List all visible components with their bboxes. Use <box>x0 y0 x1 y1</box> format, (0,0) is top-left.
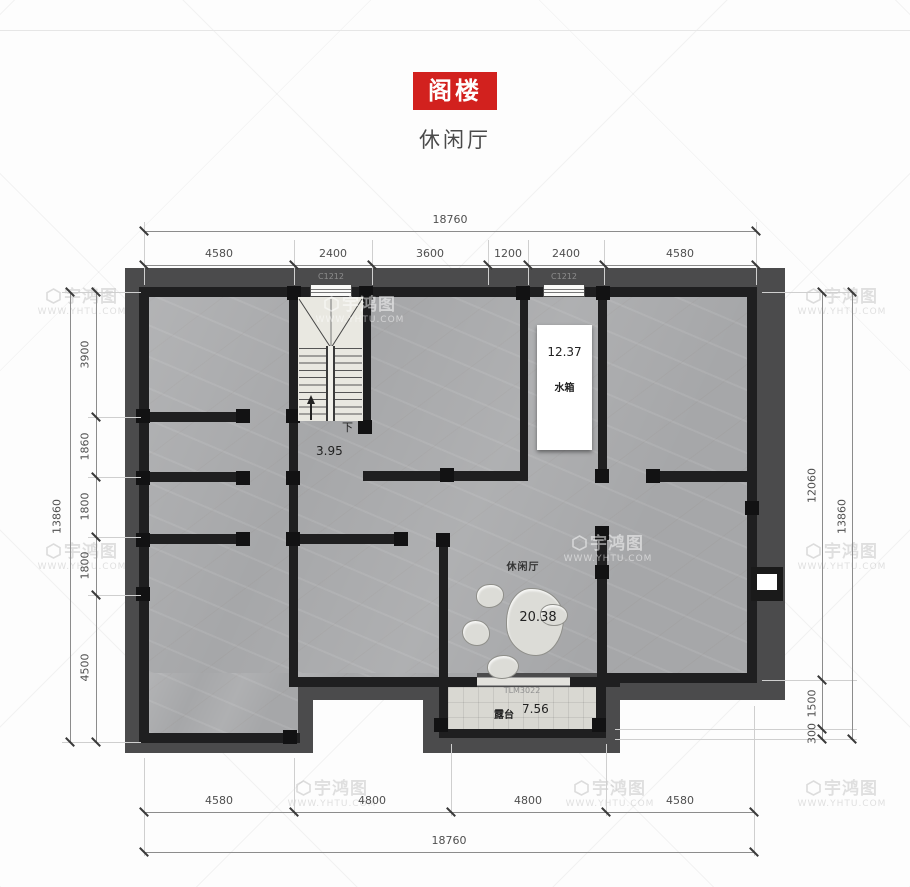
column <box>136 409 150 423</box>
column <box>136 471 150 485</box>
top-divider <box>0 30 910 31</box>
dim-left-seg: 1800 <box>79 482 92 532</box>
watermark-hex-icon: 宇鸿图 <box>782 288 902 307</box>
dim-top-overall: 18760 <box>420 213 480 226</box>
dim-right-seg: 1500 <box>806 684 819 724</box>
floor-main <box>149 297 747 673</box>
column <box>136 587 150 601</box>
window-label-2: C1212 <box>538 272 590 281</box>
column <box>595 469 609 483</box>
column <box>434 718 448 732</box>
ext-line <box>606 744 607 816</box>
column <box>136 533 150 547</box>
wall-tank-right <box>598 297 607 483</box>
dim-top-seg: 2400 <box>308 247 358 260</box>
column <box>358 420 372 434</box>
wall-spine-vertical <box>289 297 298 687</box>
water-tank-value: 12.37 <box>537 345 592 359</box>
column <box>516 286 530 300</box>
watermark-hex-icon: 宇鸿图 <box>300 296 420 315</box>
watermark: 宇鸿图 WWW.YHTU.COM <box>300 296 420 326</box>
watermark: 宇鸿图 WWW.YHTU.COM <box>782 543 902 573</box>
column <box>440 468 454 482</box>
column <box>646 469 660 483</box>
ext-line <box>762 292 857 293</box>
column <box>436 533 450 547</box>
floor-bottom-left-room <box>149 673 298 733</box>
watermark: 宇鸿图 WWW.YHTU.COM <box>550 780 670 810</box>
column <box>286 471 300 485</box>
stair-value-label: 3.95 <box>316 444 352 458</box>
window-c1212-2 <box>543 284 585 297</box>
terrace-value: 7.56 <box>522 702 558 716</box>
wall-right-room <box>648 471 757 482</box>
ext-line <box>294 240 295 285</box>
ext-line <box>372 240 373 285</box>
terrace-door-threshold <box>477 677 570 686</box>
dim-bottom-seg: 4800 <box>503 794 553 807</box>
watermark-hex-icon: 宇鸿图 <box>550 780 670 799</box>
dim-top-seg: 3600 <box>405 247 455 260</box>
column <box>236 409 250 423</box>
terrace-door-code: TLM3022 <box>492 686 552 695</box>
dim-right-overall: 13860 <box>836 487 849 547</box>
stair-stringer <box>326 346 335 421</box>
wall-bottom-middle <box>289 677 477 687</box>
column <box>745 501 759 515</box>
dim-top-seg: 4580 <box>655 247 705 260</box>
dim-bottom-seg: 4580 <box>194 794 244 807</box>
column <box>236 532 250 546</box>
wall-mid-horizontal-2 <box>289 534 406 544</box>
dim-line-bottom-overall <box>144 852 754 853</box>
ext-line <box>451 744 452 816</box>
column <box>596 286 610 300</box>
terrace-name: 露台 <box>494 706 520 721</box>
ext-line <box>62 742 141 743</box>
ext-line <box>144 758 145 856</box>
dim-bottom-seg: 4580 <box>655 794 705 807</box>
dim-left-seg: 3900 <box>79 330 92 380</box>
watermark-hex-icon: 宇鸿图 <box>782 780 902 799</box>
wall-right <box>747 287 757 683</box>
dim-left-overall: 13860 <box>51 487 64 547</box>
wall-left-stub-3 <box>149 534 248 544</box>
window-label-1: C1212 <box>305 272 357 281</box>
lounge-name: 休闲厅 <box>494 558 552 573</box>
column <box>595 565 609 579</box>
floorplan-page: 阁楼 休闲厅 宇鸿图 WWW.YHTU.COM 宇鸿图 WWW.YHTU.COM… <box>0 0 910 887</box>
column <box>286 532 300 546</box>
watermark-hex-icon: 宇鸿图 <box>22 288 142 307</box>
chimney-flue-inner <box>757 574 777 590</box>
dim-line-left-overall <box>70 292 71 742</box>
ext-line <box>604 240 605 285</box>
column <box>283 730 297 744</box>
wall-bottom-left <box>139 733 300 743</box>
dim-bottom-seg: 4800 <box>347 794 397 807</box>
dim-top-seg: 1200 <box>483 247 533 260</box>
page-title-badge: 阁楼 <box>413 72 497 110</box>
watermark: 宇鸿图 WWW.YHTU.COM <box>782 780 902 810</box>
ext-line <box>62 292 141 293</box>
ext-line <box>762 680 857 681</box>
dim-left-seg: 1860 <box>79 422 92 472</box>
stair-direction-arrowhead <box>307 395 315 404</box>
dim-right-seg: 12060 <box>806 456 819 516</box>
dim-left-seg: 4500 <box>79 643 92 693</box>
dim-right-seg: 300 <box>806 719 819 749</box>
wall-tank-left <box>520 297 528 477</box>
wall-left-stub-2 <box>149 472 248 482</box>
dim-line-left-segments <box>96 292 97 742</box>
wall-bottom-right <box>597 673 757 683</box>
dim-top-seg: 4580 <box>194 247 244 260</box>
decorative-rock <box>462 620 490 646</box>
water-tank-name: 水箱 <box>537 379 592 394</box>
column <box>236 471 250 485</box>
dim-top-seg: 2400 <box>541 247 591 260</box>
dim-line-right-overall <box>852 292 853 739</box>
watermark: 宇鸿图 WWW.YHTU.COM <box>548 535 668 565</box>
page-subtitle: 休闲厅 <box>0 124 910 154</box>
column <box>394 532 408 546</box>
wall-terrace-bottom <box>439 729 606 738</box>
column <box>592 718 606 732</box>
wall-left <box>139 287 149 743</box>
dim-bottom-overall: 18760 <box>419 834 479 847</box>
wall-left-stub-1 <box>149 412 248 422</box>
dim-line-right-segments <box>822 292 823 739</box>
dim-left-seg: 1800 <box>79 541 92 591</box>
wall-top <box>139 287 757 297</box>
stair-direction-arrow <box>310 402 312 420</box>
watermark-hex-icon: 宇鸿图 <box>548 535 668 554</box>
dim-line-top-segments <box>144 265 756 266</box>
dim-line-top-overall <box>144 231 756 232</box>
lounge-value: 20.38 <box>508 610 568 625</box>
wall-lounge-left <box>439 534 448 738</box>
stair-down-label: 下 <box>342 419 360 435</box>
ext-line <box>294 758 295 816</box>
